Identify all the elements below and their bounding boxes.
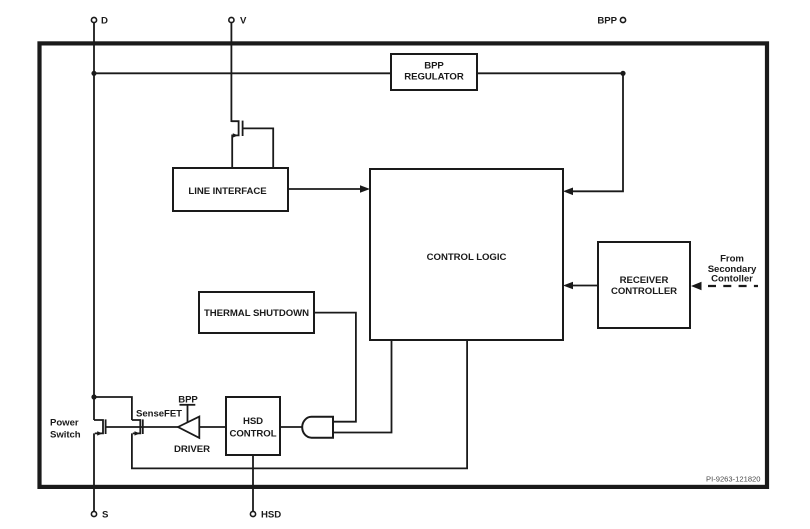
svg-text:SenseFET: SenseFET <box>136 409 182 420</box>
svg-text:D: D <box>101 16 108 27</box>
svg-text:V: V <box>240 16 247 27</box>
svg-text:Switch: Switch <box>50 430 81 441</box>
svg-text:LINE INTERFACE: LINE INTERFACE <box>188 186 267 197</box>
svg-text:BPP: BPP <box>178 395 198 406</box>
svg-text:CONTROL: CONTROL <box>229 429 276 440</box>
svg-text:DRIVER: DRIVER <box>174 444 210 455</box>
svg-text:HSD: HSD <box>261 510 281 521</box>
svg-text:RECEIVER: RECEIVER <box>620 275 669 286</box>
svg-text:REGULATOR: REGULATOR <box>404 72 464 83</box>
svg-text:CONTROLLER: CONTROLLER <box>611 286 677 297</box>
svg-text:S: S <box>102 510 109 521</box>
svg-text:BPP: BPP <box>597 16 617 27</box>
svg-text:HSD: HSD <box>243 416 263 427</box>
svg-text:Contoller: Contoller <box>711 274 753 285</box>
svg-text:PI-9263-121820: PI-9263-121820 <box>706 474 760 483</box>
svg-text:CONTROL LOGIC: CONTROL LOGIC <box>427 252 507 263</box>
svg-text:THERMAL SHUTDOWN: THERMAL SHUTDOWN <box>204 308 309 319</box>
svg-text:Power: Power <box>50 418 79 429</box>
svg-text:BPP: BPP <box>424 61 444 72</box>
